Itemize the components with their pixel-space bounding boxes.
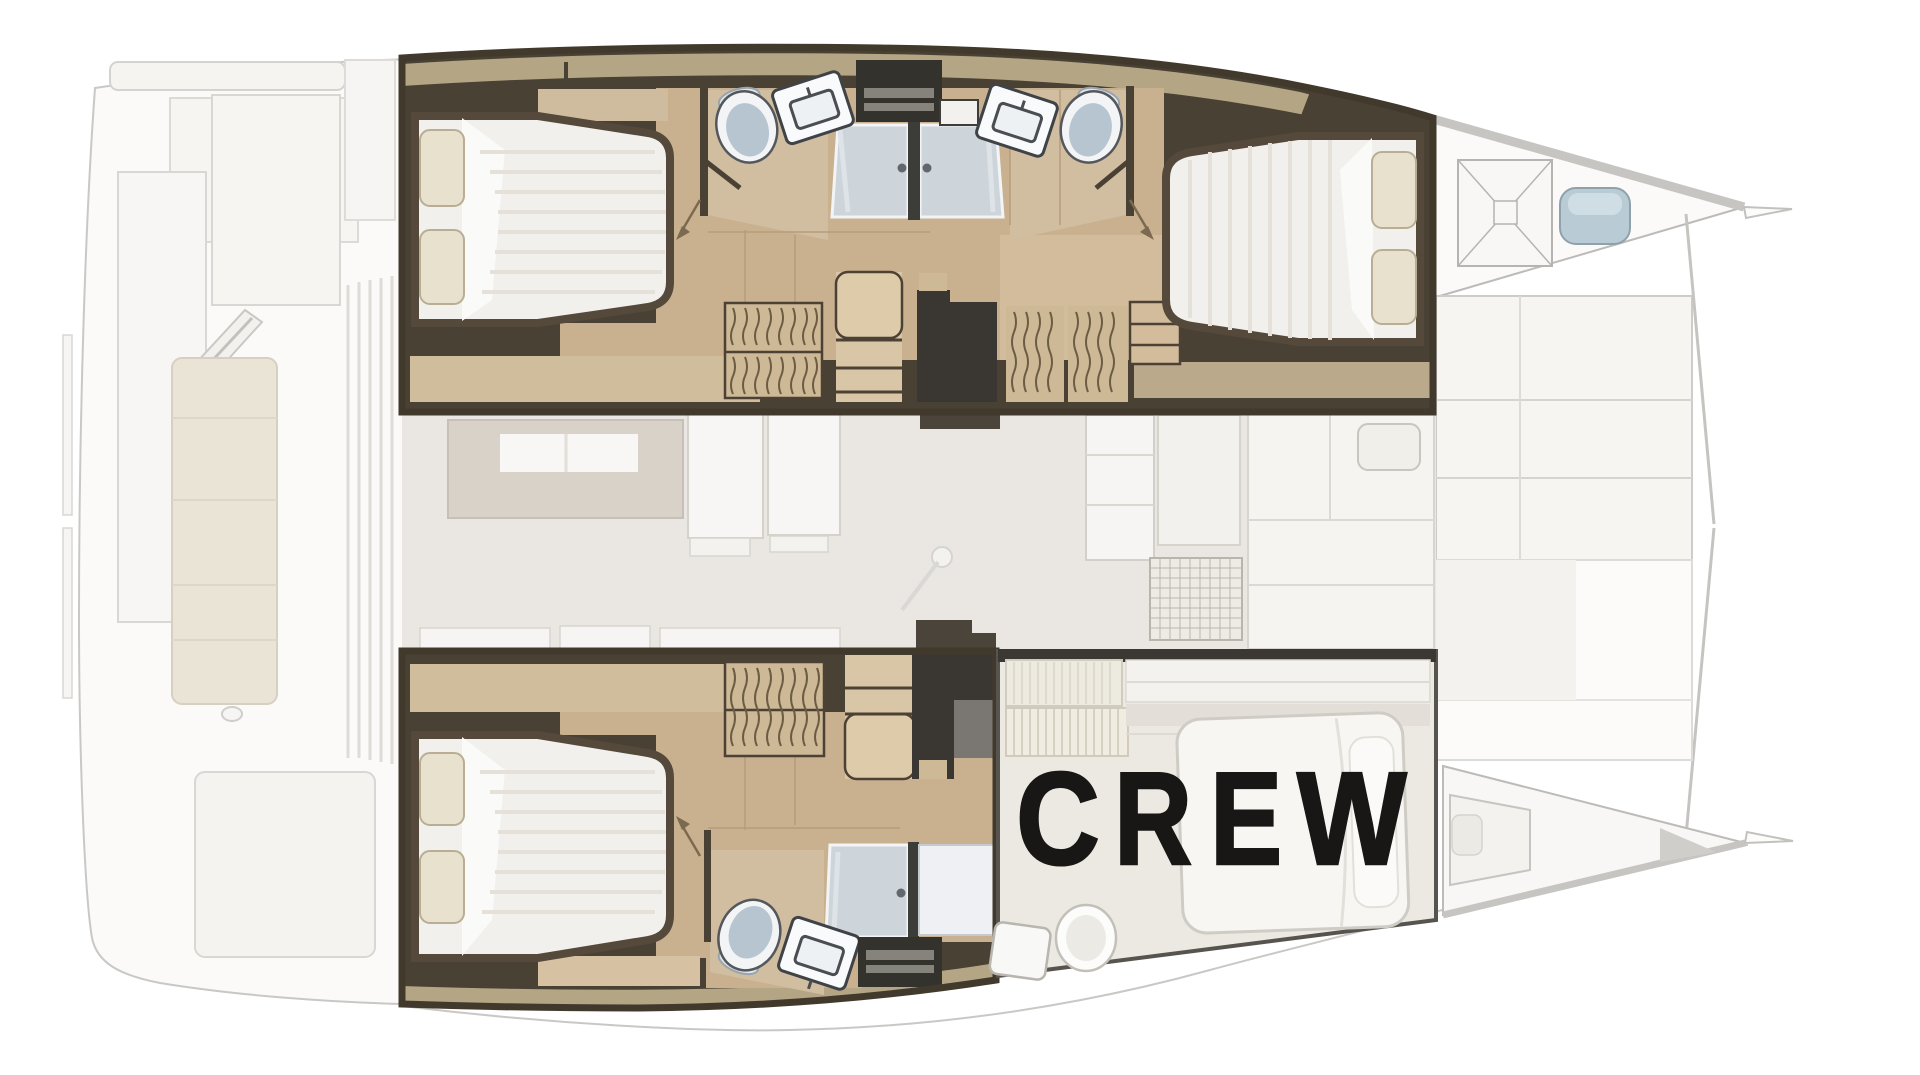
svg-text:W: W: [1297, 745, 1407, 893]
svg-text:E: E: [1210, 745, 1282, 893]
svg-text:C: C: [1016, 745, 1100, 893]
svg-text:R: R: [1114, 745, 1192, 893]
